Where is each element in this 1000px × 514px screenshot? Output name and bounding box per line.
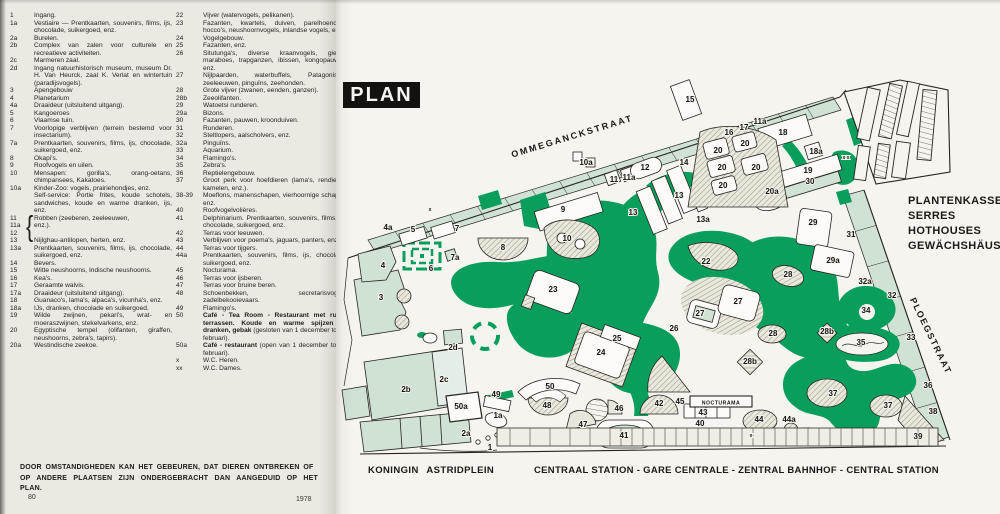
legend-item-number: 28	[176, 87, 203, 95]
legend-item-text: Westindische zeekoe.	[34, 342, 172, 350]
note-line-2: OP ANDERE PLAATSEN ZIJN ONDERGEBRACHT DA…	[20, 474, 318, 495]
legend-item-number: 2a	[10, 35, 34, 43]
map-number: 14	[680, 158, 689, 167]
legend-item-number: 29a	[176, 110, 203, 118]
map-number: 44	[755, 415, 764, 424]
legend-item-text: Vestiaire — Prentkaarten, souvenirs, fil…	[34, 20, 172, 35]
legend-item: 17aDraaideur (uitsluitend uitgang).	[10, 290, 172, 298]
legend-item-text: Draaideur (uitsluitend uitgang).	[34, 102, 172, 110]
map-number: 13	[675, 191, 684, 200]
greenhouse-labels: PLANTENKASSENSERRESHOTHOUSESGEWÄCHSHÄUSE…	[908, 194, 1000, 254]
legend-item: 19Wilde zwijnen, pekari's, wrat- en moer…	[10, 312, 172, 327]
legend-item-text: IJs, dranken, chocolade en suikergoed.	[34, 305, 172, 313]
map-number: 32a	[858, 277, 872, 286]
legend-item-text: Ingang natuurhistorisch museum, museum D…	[34, 65, 172, 88]
map-number: 18	[779, 128, 788, 137]
legend-item: 17Geraamte walvis.	[10, 282, 172, 290]
map-number: 18a	[809, 147, 823, 156]
map-number: 29	[809, 218, 818, 227]
map-number: 13	[629, 208, 638, 217]
legend-column-1: 1Ingang.1aVestiaire — Prentkaarten, souv…	[10, 12, 172, 350]
map-number: 28b	[743, 357, 757, 366]
nocturama-label: NOCTURAMA	[702, 401, 741, 407]
legend-item: 1Ingang.	[10, 12, 172, 20]
map-number: 1	[488, 443, 493, 452]
map-number: 50a	[454, 402, 468, 411]
legend-item-number: 48	[176, 290, 203, 298]
map-number: 47	[579, 420, 588, 429]
legend-item-text: Nijlghau-antilopen, herten, enz.	[34, 237, 172, 245]
map-number: 28	[784, 270, 793, 279]
map-number: 23	[549, 285, 558, 294]
legend-item-number: 31	[176, 125, 203, 133]
legend-item-text: Geraamte walvis.	[34, 282, 172, 290]
legend-item-number: 23	[176, 20, 203, 28]
map-number: 3	[379, 293, 384, 302]
map-number: 35	[857, 338, 866, 347]
legend-item: 9Roofvogels en uilen.	[10, 162, 172, 170]
legend-item-number: 22	[176, 12, 203, 20]
legend-item-number: 24	[176, 35, 203, 43]
legend-item-number: 27	[176, 72, 203, 80]
map-number: 31	[847, 230, 856, 239]
map-number: 20	[752, 163, 761, 172]
legend-item: 13aPrentkaarten, souvenirs, films, ijs, …	[10, 245, 172, 260]
greenhouse-label-line: HOTHOUSES	[908, 224, 1000, 239]
legend-item-number: 2d	[10, 65, 34, 73]
legend-item-text: Prentkaarten, souvenirs, films, ijs, cho…	[34, 245, 172, 260]
legend-item-text: Roofvogels en uilen.	[34, 162, 172, 170]
legend-item: 11Robben (zeeberen, zeeleeuwen,	[10, 215, 172, 223]
legend-item-number: 10	[10, 170, 34, 178]
map-number: 22	[702, 257, 711, 266]
legend-item-number: 25	[176, 42, 203, 50]
legend-item-number: 33	[176, 147, 203, 155]
legend-item: 2cMarmeren zaal.	[10, 57, 172, 65]
legend-item: 7aPrentkaarten, souvenirs, films, ijs, c…	[10, 140, 172, 155]
legend-item-number: 15	[10, 267, 34, 275]
map-number: 29a	[826, 256, 840, 265]
zoo-plan-map: 11a2a2b2c2d344a5677a891010a1111a12131313…	[340, 0, 1000, 514]
map-number: 13a	[696, 215, 710, 224]
legend-item: 3Apengebouw	[10, 87, 172, 95]
scan-edge-top	[0, 0, 1000, 4]
legend-brace: {	[26, 213, 33, 242]
map-number: 1a	[494, 411, 503, 420]
legend-item-number: 18a	[10, 305, 34, 313]
map-number: 32	[888, 291, 897, 300]
map-number: 41	[620, 431, 629, 440]
year-label: 1978	[296, 496, 312, 503]
legend-item-number: 44	[176, 245, 203, 253]
legend-item: 16Kea's.	[10, 275, 172, 283]
map-number: 50	[546, 382, 555, 391]
legend-item-number: 10a	[10, 185, 34, 193]
map-number: 5	[411, 225, 416, 234]
legend-item-number: 35	[176, 162, 203, 170]
legend-item-text: Bevers.	[34, 260, 172, 268]
map-number: 2d	[448, 343, 457, 352]
legend-item: 5Kangoeroes	[10, 110, 172, 118]
plan-title: PLAN	[343, 82, 420, 108]
legend-item-text: Voorlopige verblijven (terrein bestemd v…	[34, 125, 172, 140]
legend-item: 13Nijlghau-antilopen, herten, enz.	[10, 237, 172, 245]
legend-item-number: 4a	[10, 102, 34, 110]
legend-item: 4Planetarium	[10, 95, 172, 103]
legend-item-number: 37	[176, 177, 203, 185]
greenhouse-label-line: PLANTENKASSEN	[908, 194, 1000, 209]
legend-item-number: 5	[10, 110, 34, 118]
legend-item-number: 17a	[10, 290, 34, 298]
map-number: 20a	[765, 187, 779, 196]
map-number: 11a	[754, 117, 767, 126]
map-number: 15	[686, 95, 695, 104]
legend-item: 15Witte neushoorns, Indische neushoorns.	[10, 267, 172, 275]
legend-item-number: 32a	[176, 140, 203, 148]
legend-item: 2bComplex van zalen voor culturele en re…	[10, 42, 172, 57]
legend-item: 20Egyptische tempel (olifanten, giraffen…	[10, 327, 172, 342]
legend-item: 8Okapi's.	[10, 155, 172, 163]
map-number: x x	[843, 155, 850, 161]
legend-item-number: x	[176, 357, 203, 365]
legend-item-number: 2c	[10, 57, 34, 65]
map-number: x	[429, 207, 432, 213]
map-number: 7	[455, 224, 460, 233]
scan-edge-left	[0, 0, 6, 514]
legend-item: 18aIJs, dranken, chocolade en suikergoed…	[10, 305, 172, 313]
legend-item-number: 26	[176, 50, 203, 58]
map-number: 34	[862, 306, 871, 315]
legend-item-number: 20a	[10, 342, 34, 350]
legend-item-number: 28b	[176, 95, 203, 103]
map-number: 27	[696, 309, 705, 318]
legend-item-number: 45	[176, 267, 203, 275]
legend-item-text: Okapi's.	[34, 155, 172, 163]
legend-item-text: Draaideur (uitsluitend uitgang).	[34, 290, 172, 298]
map-number: 6	[429, 264, 434, 273]
legend-item: 20aWestindische zeekoe.	[10, 342, 172, 350]
legend-item-number: 7a	[10, 140, 34, 148]
map-number: 49	[492, 390, 501, 399]
map-number: 30	[806, 177, 815, 186]
scanned-guide-spread: 1Ingang.1aVestiaire — Prentkaarten, souv…	[0, 0, 1000, 514]
greenhouse-label-line: SERRES	[908, 209, 1000, 224]
legend-item-number: 3	[10, 87, 34, 95]
map-number: 12	[641, 163, 650, 172]
legend-item-text: Guanaco's, lama's, alpaca's, vicunha's, …	[34, 297, 172, 305]
legend-item: 2aBurelen.	[10, 35, 172, 43]
map-number: 37	[829, 389, 838, 398]
greenhouses	[844, 80, 950, 184]
legend-item-text: Vlaamse tuin.	[34, 117, 172, 125]
map-number: 25	[613, 334, 622, 343]
legend-item-text: Robben (zeeberen, zeeleeuwen,	[34, 215, 172, 223]
legend-item-number: xx	[176, 365, 203, 373]
legend-item-number: 50a	[176, 342, 203, 350]
legend-item-text: Burelen.	[34, 35, 172, 43]
legend-item-text: Planetarium	[34, 95, 172, 103]
legend-item-number: 8	[10, 155, 34, 163]
legend-item: 2dIngang natuurhistorisch museum, museum…	[10, 65, 172, 88]
map-number: 42	[655, 399, 664, 408]
legend-item-number: 30	[176, 117, 203, 125]
legend-item-number: 46	[176, 275, 203, 283]
map-number: 36	[924, 381, 933, 390]
map-number: 26	[670, 324, 679, 333]
legend-page: 1Ingang.1aVestiaire — Prentkaarten, souv…	[0, 0, 336, 514]
legend-item-number: 9	[10, 162, 34, 170]
legend-item-text: enz.).	[34, 222, 172, 230]
map-number: 2c	[440, 375, 449, 384]
map-number: 48	[543, 401, 552, 410]
map-number: 43	[699, 408, 708, 417]
legend-note: DOOR OMSTANDIGHEDEN KAN HET GEBEUREN, DA…	[20, 463, 318, 495]
legend-item-text: Kinder-Zoo: vogels, prairiehondjes, enz.	[34, 185, 172, 193]
legend-item-number: 6	[10, 117, 34, 125]
legend-item-text: Egyptische tempel (olifanten, giraffen, …	[34, 327, 172, 342]
map-number: 33	[907, 333, 916, 342]
station-label: CENTRAAL STATION - GARE CENTRALE - ZENTR…	[534, 465, 939, 476]
map-number: 19	[804, 166, 813, 175]
legend-item-number: 44a	[176, 252, 203, 260]
legend-item-text: Complex van zalen voor culturele en recr…	[34, 42, 172, 57]
map-number: x	[750, 433, 753, 439]
legend-item-text: Ingang.	[34, 12, 172, 20]
map-number: 10	[563, 234, 572, 243]
map-number: 45	[676, 397, 685, 406]
map-number: 4a	[384, 223, 393, 232]
map-number: 40	[696, 419, 705, 428]
legend-item-number: 49	[176, 305, 203, 313]
map-number: 10a	[579, 158, 593, 167]
legend-item-number: 18	[10, 297, 34, 305]
legend-item-number: 50	[176, 312, 203, 320]
map-number: 20	[719, 181, 728, 190]
legend-item-number: 1a	[10, 20, 34, 28]
legend-item-text: Kangoeroes	[34, 110, 172, 118]
legend-item-number: 19	[10, 312, 34, 320]
legend-item: 14Bevers.	[10, 260, 172, 268]
legend-item-number: 13a	[10, 245, 34, 253]
legend-item-text: Kea's.	[34, 275, 172, 283]
map-number: 37	[884, 401, 893, 410]
legend-item-number: 2b	[10, 42, 34, 50]
map-number: 38	[929, 407, 938, 416]
legend-item: 10Mensapen: gorilla's, orang-oetans, chi…	[10, 170, 172, 185]
map-number: 2b	[401, 385, 410, 394]
legend-item: 1aVestiaire — Prentkaarten, souvenirs, f…	[10, 20, 172, 35]
legend-item-number: 32	[176, 132, 203, 140]
legend-item-number: 4	[10, 95, 34, 103]
legend-item: 10aKinder-Zoo: vogels, prairiehondjes, e…	[10, 185, 172, 193]
legend-item-text: Witte neushoorns, Indische neushoorns.	[34, 267, 172, 275]
legend-item-number: 47	[176, 282, 203, 290]
legend-item-text: Self-service: Portie frites, koude schot…	[34, 192, 172, 215]
square-label-astridplein: KONINGIN ASTRIDPLEIN	[368, 465, 494, 476]
note-line-1: DOOR OMSTANDIGHEDEN KAN HET GEBEUREN, DA…	[20, 463, 318, 474]
legend-item-number: 7	[10, 125, 34, 133]
map-number: 11a	[623, 173, 636, 182]
map-number: 24	[597, 348, 606, 357]
map-number: 39	[914, 432, 923, 441]
legend-item-number: 17	[10, 282, 34, 290]
legend-item: 6Vlaamse tuin.	[10, 117, 172, 125]
map-number: 11	[610, 175, 619, 184]
legend-item: 12	[10, 230, 172, 238]
map-number: 16	[725, 128, 734, 137]
map-number: 4	[381, 261, 386, 270]
legend-item-number: 43	[176, 237, 203, 245]
page-gutter-shadow	[320, 0, 354, 514]
legend-item-number: 42	[176, 230, 203, 238]
map-number: 28b	[820, 327, 834, 336]
legend-item: 11aenz.).	[10, 222, 172, 230]
map-number: 44a	[782, 415, 796, 424]
map-number: 27	[734, 297, 743, 306]
map-number: 17	[740, 123, 749, 132]
legend-item-text: Prentkaarten, souvenirs, films, ijs, cho…	[34, 140, 172, 155]
map-number: 20	[718, 163, 727, 172]
legend-item: 4aDraaideur (uitsluitend uitgang).	[10, 102, 172, 110]
legend-item-number: 16	[10, 275, 34, 283]
map-number: 8	[501, 243, 506, 252]
legend-item-number: 36	[176, 170, 203, 178]
legend-item: 18Guanaco's, lama's, alpaca's, vicunha's…	[10, 297, 172, 305]
legend-item-number: 38-39	[176, 192, 203, 200]
map-number: 20	[714, 146, 723, 155]
legend-item-number: 34	[176, 155, 203, 163]
map-number: 28	[769, 329, 778, 338]
legend-item-text: Wilde zwijnen, pekari's, wrat- en moeras…	[34, 312, 172, 327]
legend-item-number: 40	[176, 207, 203, 215]
legend-item-text: Marmeren zaal.	[34, 57, 172, 65]
legend-item-number: 20	[10, 327, 34, 335]
legend-item-number: 41	[176, 215, 203, 223]
legend-item: 7Voorlopige verblijven (terrein bestemd …	[10, 125, 172, 140]
map-number: 46	[615, 404, 624, 413]
map-number: 7a	[451, 253, 460, 262]
legend-item-text: Mensapen: gorilla's, orang-oetans, chimp…	[34, 170, 172, 185]
legend-item: Self-service: Portie frites, koude schot…	[10, 192, 172, 215]
page-number: 80	[28, 494, 36, 501]
legend-item-number: 29	[176, 102, 203, 110]
legend-item-number: 14	[10, 260, 34, 268]
greenhouse-label-line: GEWÄCHSHÄUSER	[908, 239, 1000, 254]
legend-item-text: Apengebouw	[34, 87, 172, 95]
legend-item-number: 1	[10, 12, 34, 20]
map-number: 20	[741, 139, 750, 148]
map-number: 2a	[462, 429, 471, 438]
map-number: 9	[561, 205, 566, 214]
